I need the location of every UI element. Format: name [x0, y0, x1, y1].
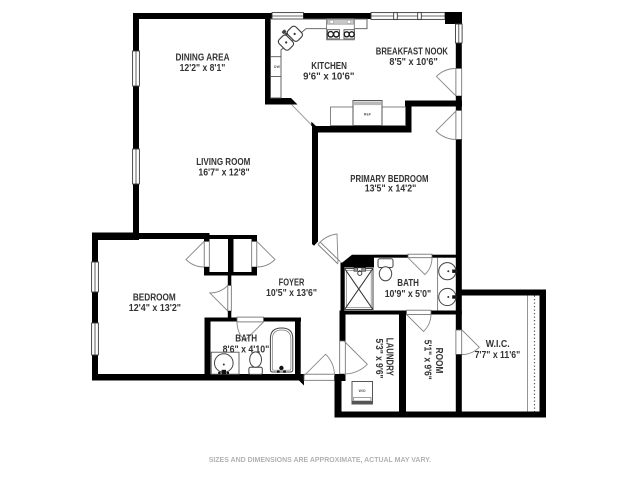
svg-text:LIVING ROOM: LIVING ROOM [196, 157, 250, 168]
svg-text:LAUNDRY: LAUNDRY [384, 338, 395, 376]
svg-text:8'6" x 4'10": 8'6" x 4'10" [223, 344, 270, 355]
svg-text:5'1" x 9'6": 5'1" x 9'6" [421, 340, 432, 380]
svg-text:16'7" x 12'8": 16'7" x 12'8" [198, 167, 249, 178]
svg-text:7'7" x 11'6": 7'7" x 11'6" [475, 350, 521, 361]
svg-text:W/D: W/D [359, 389, 367, 393]
svg-text:12'2" x 8'1": 12'2" x 8'1" [180, 63, 226, 74]
svg-text:8'5" x 10'6": 8'5" x 10'6" [389, 57, 437, 68]
svg-text:ROOM: ROOM [433, 348, 444, 374]
svg-text:12'4" x 13'2": 12'4" x 13'2" [129, 303, 181, 314]
svg-text:FOYER: FOYER [279, 278, 305, 289]
svg-text:10'5" x 13'6": 10'5" x 13'6" [266, 288, 317, 299]
svg-text:W.I.C.: W.I.C. [486, 339, 510, 350]
svg-text:BATH: BATH [235, 334, 257, 345]
svg-text:REF: REF [364, 113, 371, 117]
svg-text:10'9" x 5'0": 10'9" x 5'0" [385, 289, 431, 300]
svg-text:BREAKFAST NOOK: BREAKFAST NOOK [376, 46, 448, 57]
svg-text:BEDROOM: BEDROOM [133, 292, 176, 303]
svg-text:5'3" x 9'6": 5'3" x 9'6" [373, 339, 384, 379]
svg-text:13'5" x 14'2": 13'5" x 14'2" [365, 184, 417, 195]
svg-text:DW: DW [274, 65, 281, 69]
svg-text:DINING AREA: DINING AREA [176, 53, 230, 64]
svg-text:9'6" x 10'6": 9'6" x 10'6" [303, 71, 354, 82]
svg-text:BATH: BATH [397, 278, 419, 289]
svg-text:SIZES AND DIMENSIONS ARE APPRO: SIZES AND DIMENSIONS ARE APPROXIMATE, AC… [209, 455, 431, 464]
svg-text:KITCHEN: KITCHEN [311, 61, 347, 72]
